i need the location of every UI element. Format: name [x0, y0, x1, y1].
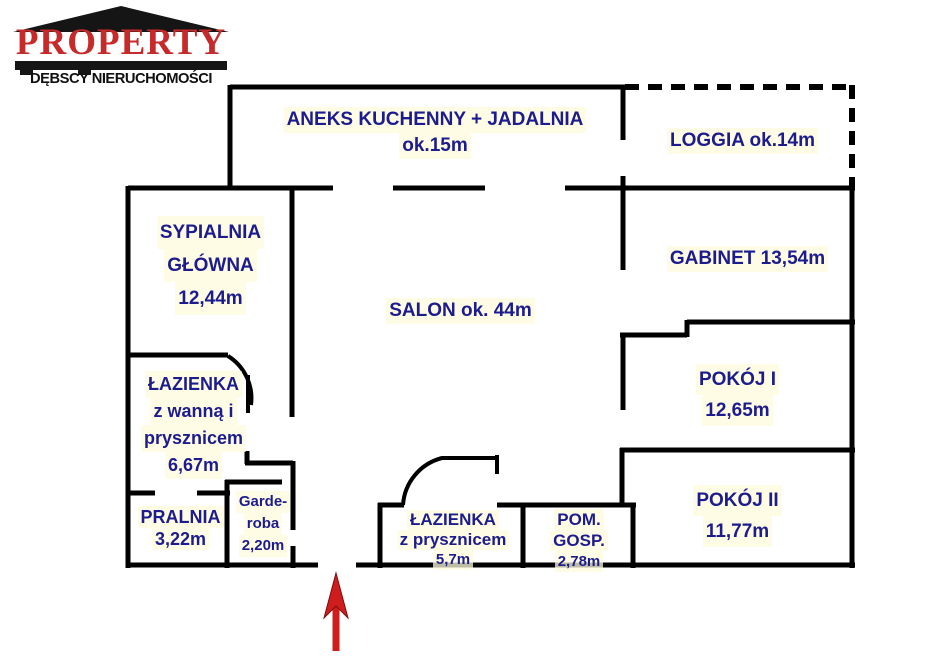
- room-label-line: GABINET 13,54m: [667, 246, 828, 272]
- room-label-line: 5,7m: [433, 550, 473, 570]
- room-label-line: roba: [244, 513, 283, 535]
- room-label-line: ok.15m: [399, 133, 470, 159]
- agency-logo: PROPERTY DĘBSCY NIERUCHOMOŚCI: [8, 4, 234, 88]
- door-swing-arc-bathroom-2: [403, 455, 497, 505]
- room-label-line: POKÓJ I: [696, 364, 779, 395]
- room-label-line: z wanną i: [150, 398, 236, 425]
- room-label-line: 2,20m: [239, 535, 288, 557]
- room-label-line: POM.: [554, 509, 603, 530]
- room-label-line: SALON ok. 44m: [386, 298, 535, 324]
- room-label-line: ŁAZIENKA: [407, 510, 499, 530]
- room-label-loggia: LOGGIA ok.14m: [635, 128, 850, 154]
- room-label-line: POKÓJ II: [693, 485, 781, 516]
- room-label-sypialnia-glowna: SYPIALNIA GŁÓWNA 12,44m: [138, 216, 283, 315]
- entrance-arrow-icon: [324, 573, 348, 651]
- room-label-line: GŁÓWNA: [164, 249, 257, 282]
- room-label-line: SYPIALNIA: [157, 216, 264, 249]
- room-label-line: 12,65m: [702, 395, 772, 426]
- room-label-line: 6,67m: [165, 452, 222, 479]
- room-label-gabinet: GABINET 13,54m: [650, 246, 845, 272]
- room-label-pokoj-1: POKÓJ I 12,65m: [665, 364, 810, 426]
- room-label-pokoj-2: POKÓJ II 11,77m: [665, 485, 810, 547]
- room-label-line: 11,77m: [703, 516, 772, 547]
- room-label-line: ŁAZIENKA: [145, 371, 242, 398]
- room-label-line: LOGGIA ok.14m: [667, 128, 818, 154]
- room-label-line: PRALNIA: [138, 506, 224, 528]
- room-label-line: z prysznicem: [397, 530, 510, 550]
- floorplan-page: PROPERTY DĘBSCY NIERUCHOMOŚCI ANEKS KUCH…: [0, 0, 948, 671]
- room-label-line: 2,78m: [555, 551, 604, 572]
- room-label-salon: SALON ok. 44m: [368, 298, 553, 324]
- room-label-line: ANEKS KUCHENNY + JADALNIA: [284, 107, 587, 133]
- room-label-line: 3,22m: [152, 528, 209, 550]
- room-label-garderoba: Garde- roba 2,20m: [232, 491, 294, 557]
- room-label-pralnia: PRALNIA 3,22m: [128, 506, 233, 550]
- logo-brand-text: PROPERTY: [8, 24, 234, 62]
- logo-subtitle-text: DĘBSCY NIERUCHOMOŚCI: [10, 70, 231, 87]
- logo-bar: [15, 61, 227, 70]
- room-label-lazienka-z-wanna: ŁAZIENKA z wanną i prysznicem 6,67m: [126, 371, 261, 479]
- room-label-lazienka-z-prysznicem: ŁAZIENKA z prysznicem 5,7m: [383, 510, 523, 570]
- room-label-aneks-kuchenny: ANEKS KUCHENNY + JADALNIA ok.15m: [255, 107, 615, 159]
- floorplan-drawing: [0, 0, 948, 671]
- room-label-line: GOSP.: [550, 530, 608, 551]
- room-label-line: 12,44m: [175, 282, 245, 315]
- room-label-line: Garde-: [236, 491, 290, 513]
- room-label-line: prysznicem: [141, 425, 246, 452]
- room-label-pom-gosp: POM. GOSP. 2,78m: [537, 509, 621, 572]
